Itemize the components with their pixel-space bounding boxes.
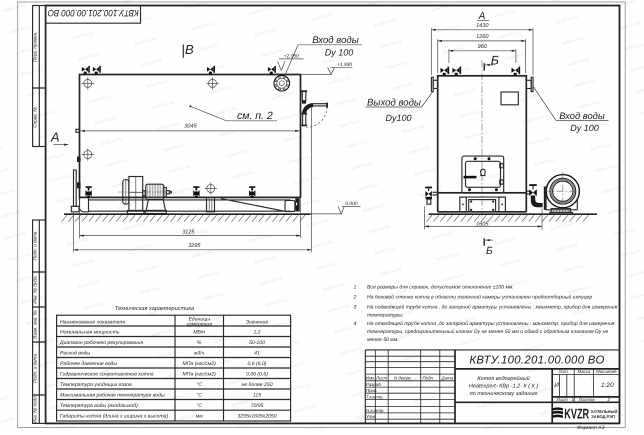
svg-text:Вход воды: Вход воды (312, 35, 359, 46)
svg-text:+2.050: +2.050 (284, 53, 299, 59)
svg-text:Инв. № дубл.: Инв. № дубл. (32, 275, 37, 303)
svg-text:0,6 (6,0): 0,6 (6,0) (248, 361, 267, 367)
svg-text:0.000: 0.000 (345, 201, 358, 207)
svg-text:Максимальная рабочая температу: Максимальная рабочая температура воды (60, 393, 165, 399)
svg-text:Heatexpert- КВр -1,2- К ( К ): Heatexpert- КВр -1,2- К ( К ) (469, 384, 538, 390)
svg-text:1605: 1605 (476, 222, 489, 228)
svg-text:°С: °С (196, 393, 202, 399)
svg-text:3295х1605х2050: 3295х1605х2050 (237, 414, 276, 420)
svg-text:Номинальная мощность: Номинальная мощность (60, 330, 120, 336)
svg-text:см. п. 2: см. п. 2 (237, 110, 273, 122)
svg-text:1: 1 (354, 285, 357, 291)
svg-text:1,2: 1,2 (253, 330, 260, 336)
svg-text:Н.контр.: Н.контр. (366, 408, 385, 413)
svg-text:1430: 1430 (476, 23, 489, 29)
svg-text:Dy100: Dy100 (385, 113, 411, 123)
svg-text:Взам. инв. №: Взам. инв. № (32, 310, 37, 338)
svg-text:Подп.: Подп. (423, 376, 435, 381)
svg-text:Температура воды (вход/выход): Температура воды (вход/выход) (60, 403, 138, 409)
svg-text:м3/ч: м3/ч (194, 351, 205, 357)
svg-text:3: 3 (354, 304, 357, 310)
svg-text:41: 41 (254, 351, 260, 357)
svg-text:Температура уходящих газов: Температура уходящих газов (60, 382, 132, 388)
svg-text:Расход воды: Расход воды (60, 351, 90, 357)
svg-text:В: В (185, 42, 194, 57)
svg-text:2: 2 (607, 397, 611, 402)
svg-text:ЗАВОД РЭП: ЗАВОД РЭП (591, 414, 615, 419)
svg-text:0,06 (0,6): 0,06 (0,6) (246, 372, 268, 378)
svg-text:Перв. примен.: Перв. примен. (32, 31, 37, 62)
svg-text:70/95: 70/95 (251, 403, 264, 409)
svg-text:Изм.: Изм. (366, 376, 375, 381)
svg-text:3125: 3125 (182, 229, 195, 235)
svg-text:Утв.: Утв. (366, 414, 376, 419)
svg-text:И: И (554, 382, 559, 389)
svg-text:МВт: МВт (193, 330, 205, 336)
svg-text:Подп. и дата: Подп. и дата (32, 354, 37, 383)
svg-text:°С: °С (196, 403, 202, 409)
svg-text:МПа (кгс/см2): МПа (кгс/см2) (183, 372, 217, 378)
svg-text:3045: 3045 (184, 124, 197, 130)
svg-text:Габариты котла (длина х ширина: Габариты котла (длина х ширина х высота) (60, 414, 168, 420)
svg-text:°С: °С (196, 382, 202, 388)
svg-text:На боковой стенке котла в обла: На боковой стенке котла в области топочн… (367, 294, 592, 300)
svg-text:3295: 3295 (188, 243, 201, 249)
svg-text:А: А (50, 129, 60, 144)
svg-text:Формат А3: Формат А3 (577, 425, 605, 430)
svg-text:температуры, предохранительный: температуры, предохранительный клапан Dу… (367, 329, 609, 335)
svg-text:Листов: Листов (578, 397, 596, 402)
svg-text:Лит.: Лит. (558, 369, 569, 374)
svg-text:Вход воды: Вход воды (559, 110, 605, 121)
svg-text:Лист: Лист (375, 376, 388, 381)
svg-text:На подводящей трубе котла , д: На подводящей трубе котла , до запорной … (367, 304, 618, 310)
svg-text:Все размеры для справок, допус: Все размеры для справок, допустимое откл… (367, 285, 514, 291)
svg-text:Dy 100: Dy 100 (325, 48, 354, 58)
svg-text:960: 960 (478, 44, 488, 50)
svg-text:1260: 1260 (476, 34, 489, 40)
svg-text:1:20: 1:20 (601, 382, 614, 389)
svg-text:температуры.: температуры. (367, 312, 404, 318)
svg-text:по техническому заданию: по техническому заданию (470, 391, 538, 397)
svg-text:%: % (197, 340, 202, 346)
svg-text:КВТУ.100.201.00.000 ВО: КВТУ.100.201.00.000 ВО (48, 8, 139, 18)
svg-text:Б: Б (486, 245, 493, 257)
svg-text:N докум.: N докум. (394, 376, 412, 381)
svg-text:Т.контр.: Т.контр. (366, 394, 384, 399)
svg-text:МПа (кгс/см2): МПа (кгс/см2) (183, 361, 217, 367)
svg-text:Масса: Масса (578, 369, 592, 374)
svg-text:Техническая характеристика: Техническая характеристика (115, 306, 194, 312)
svg-text:Масштаб: Масштаб (596, 369, 617, 374)
svg-text:Инв. № подл.: Инв. № подл. (32, 395, 37, 424)
svg-text:2: 2 (353, 294, 357, 300)
svg-text:Дата: Дата (441, 376, 454, 381)
svg-text:KVZR: KVZR (564, 406, 589, 422)
svg-text:КВТУ.100.201.00.000 ВО: КВТУ.100.201.00.000 ВО (469, 355, 604, 367)
svg-text:Подп. и дата: Подп. и дата (32, 231, 37, 260)
svg-text:не более 250: не более 250 (241, 382, 272, 388)
svg-text:На отводящей трубе котла ,до з: На отводящей трубе котла ,до запорной ар… (367, 321, 615, 327)
svg-text:Рабочее давление воды: Рабочее давление воды (60, 361, 117, 367)
svg-text:115: 115 (253, 393, 261, 399)
svg-text:Справ. №: Справ. № (32, 107, 37, 128)
svg-text:Наименование показателя: Наименование показателя (60, 319, 125, 325)
svg-text:Б: Б (491, 54, 499, 68)
svg-text:Значение: Значение (246, 319, 269, 325)
svg-text:4: 4 (354, 321, 357, 327)
svg-text:Котел водогрейный: Котел водогрейный (477, 375, 529, 382)
svg-text:менее 50 мм.: менее 50 мм. (367, 337, 399, 343)
svg-text:Пров.: Пров. (366, 388, 378, 393)
svg-text:Разраб.: Разраб. (366, 382, 382, 387)
svg-text:Диапазон рабочего регулировани: Диапазон рабочего регулирования (59, 340, 143, 346)
svg-text:измерения: измерения (186, 321, 212, 327)
svg-text:мм: мм (196, 414, 203, 420)
svg-text:Гидравлическое сопротивление к: Гидравлическое сопротивление котла (60, 372, 154, 378)
svg-text:50-100: 50-100 (249, 340, 265, 346)
svg-text:Лист: Лист (556, 397, 569, 402)
svg-text:Dy 100: Dy 100 (570, 123, 599, 133)
